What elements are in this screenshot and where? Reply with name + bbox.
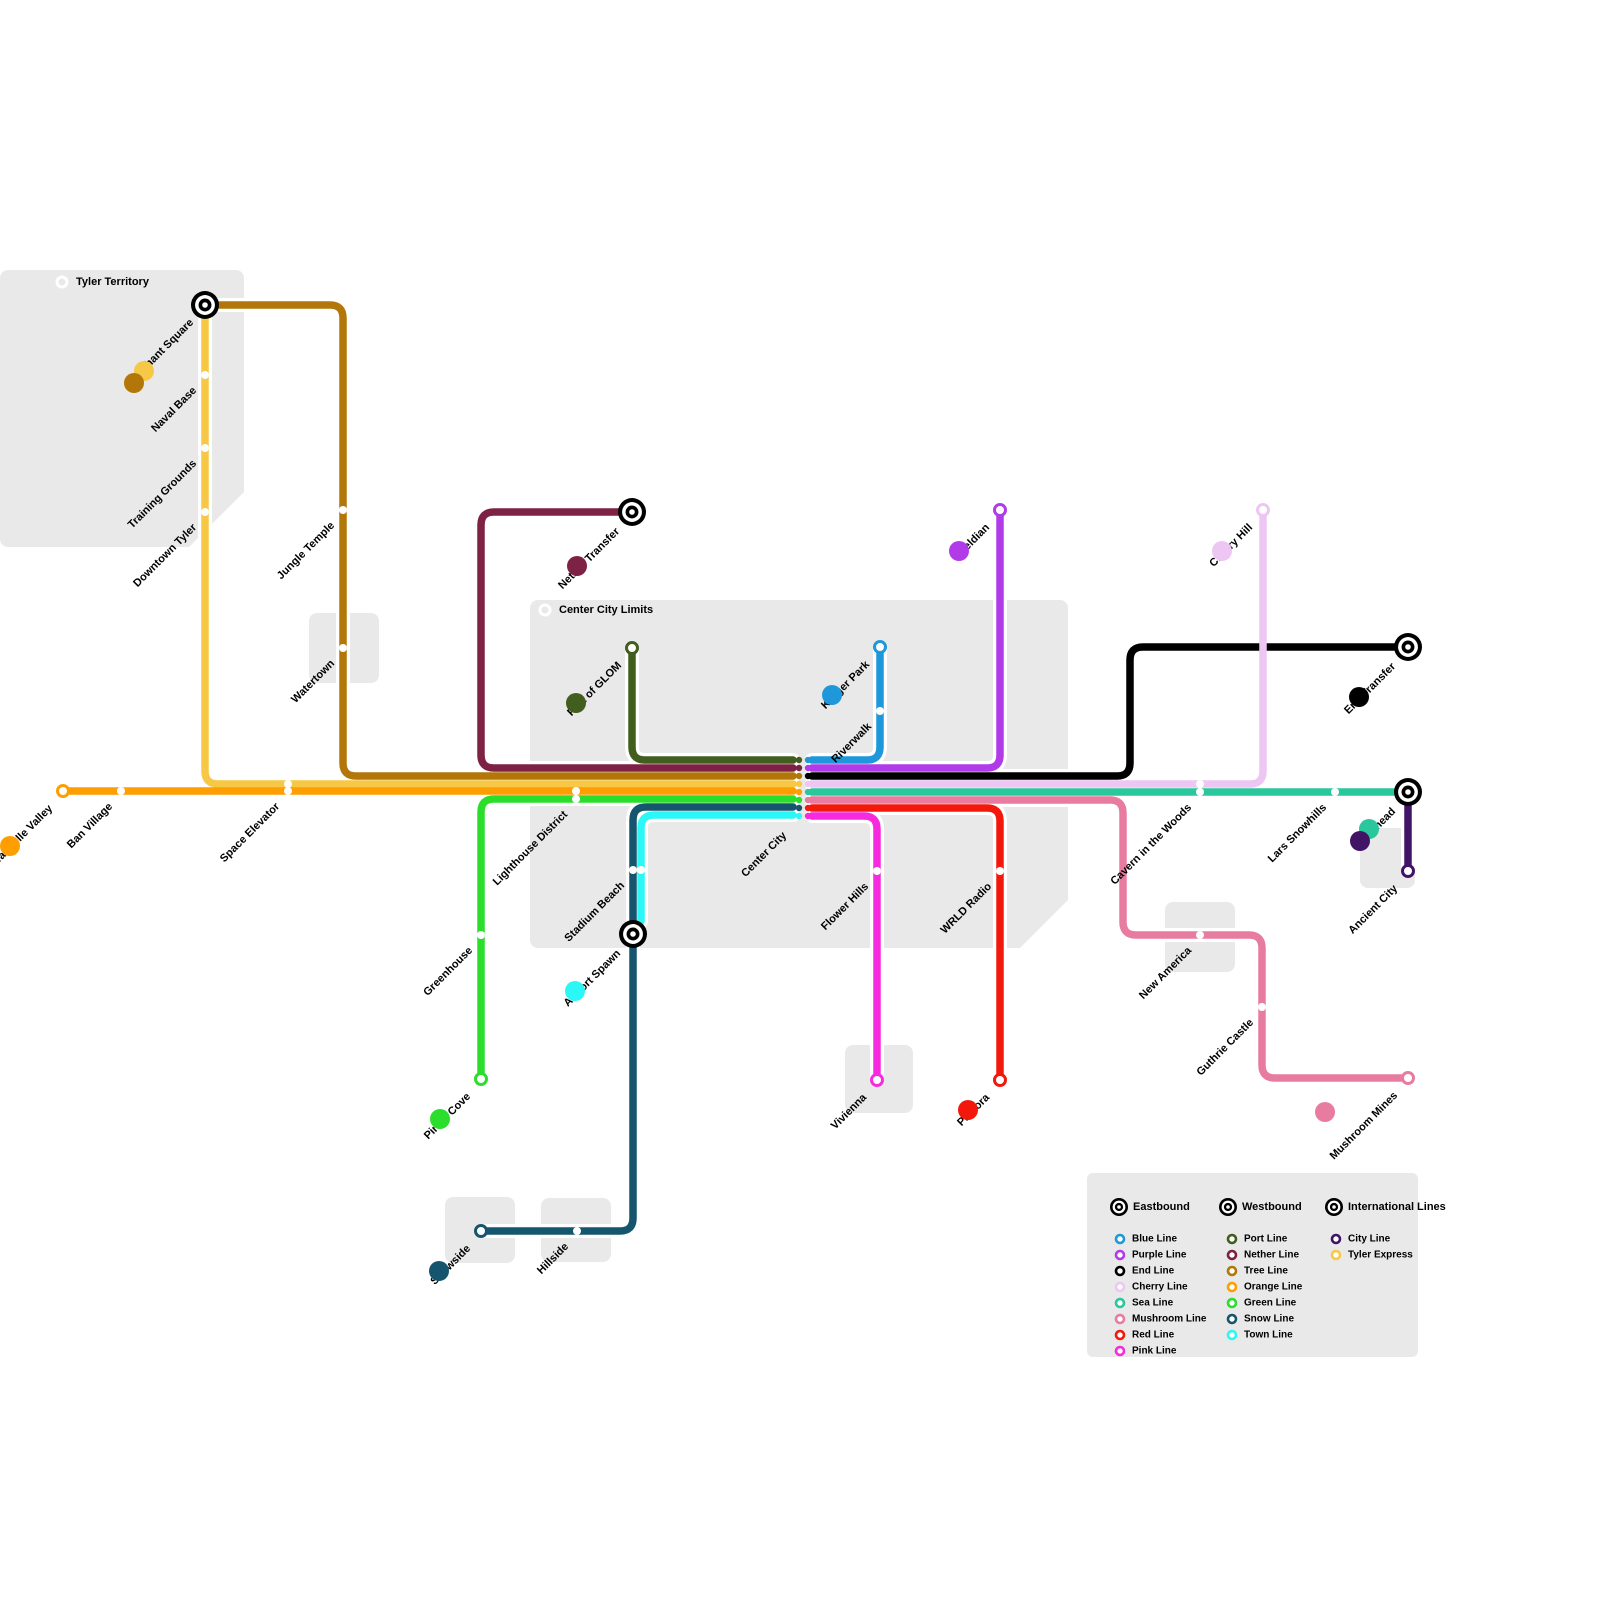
hub-marker-oceghead xyxy=(1394,778,1422,806)
terminus-ring-pirate-cove xyxy=(476,1074,487,1085)
legend-bullet-orange-line xyxy=(1228,1283,1236,1291)
center-city-line-dot xyxy=(805,781,811,787)
legend-item-tree-line: Tree Line xyxy=(1244,1266,1288,1277)
center-city-line-dot xyxy=(805,813,811,819)
legend-item-cherry-line: Cherry Line xyxy=(1132,1282,1188,1293)
station-dot-guthrie-castle xyxy=(1258,1003,1266,1011)
terminus-ring-mushroom-mines xyxy=(1403,1073,1414,1084)
station-label-nether-transfer: Nether Transfer xyxy=(556,525,622,591)
station-dot-downtown-tyler xyxy=(201,508,209,516)
legend-bullet-city-line xyxy=(1332,1235,1340,1243)
station-dot-lars-snowhills xyxy=(1331,788,1339,796)
bullseye-center xyxy=(630,931,636,937)
terminus-ring-kroger-park xyxy=(875,642,886,653)
station-dot-stadium-beach xyxy=(637,866,645,874)
legend-bullet-nether-line xyxy=(1228,1251,1236,1259)
station-dot-space-elevator xyxy=(284,780,292,788)
legend-header-eastbound: Eastbound xyxy=(1133,1201,1190,1213)
legend-bullet-end-line xyxy=(1116,1267,1124,1275)
terminus-ring-wandelle-valley xyxy=(58,786,69,797)
legend-bullet-sea-line xyxy=(1116,1299,1124,1307)
center-city-line-dot xyxy=(805,805,811,811)
hub-marker-airport-spawn xyxy=(619,920,647,948)
cherry-line-badge xyxy=(1212,541,1232,561)
legend-header-icon-international-lines xyxy=(1325,1198,1343,1216)
station-label-mushroom-mines: Mushroom Mines xyxy=(1328,1090,1400,1162)
legend-bullet-tyler-express xyxy=(1332,1251,1340,1259)
center-city-line-dot xyxy=(796,813,802,819)
center-city-line-dot xyxy=(796,789,802,795)
terminus-ring-wyeldian xyxy=(995,505,1006,516)
center-city-line-dot xyxy=(805,789,811,795)
legend-header-icon-westbound xyxy=(1219,1198,1237,1216)
station-dot-training-grounds xyxy=(201,444,209,452)
metro-map-page: Center CityNaval BaseTraining GroundsDow… xyxy=(0,0,1600,1600)
legend-item-red-line: Red Line xyxy=(1132,1330,1175,1341)
snow-line-badge xyxy=(429,1261,449,1281)
station-dot-greenhouse xyxy=(477,931,485,939)
bullseye-center xyxy=(1332,1205,1336,1209)
blue-line-badge xyxy=(822,685,842,705)
bullseye-center xyxy=(202,302,208,308)
center-city-line-dot xyxy=(805,773,811,779)
station-dot-cavern-in-the-woods xyxy=(1196,780,1204,788)
station-dot-stadium-beach xyxy=(629,866,637,874)
station-dot-ban-village xyxy=(117,787,125,795)
hub-marker-nether-transfer xyxy=(618,498,646,526)
legend-bullet-snow-line xyxy=(1228,1315,1236,1323)
legend-item-sea-line: Sea Line xyxy=(1132,1298,1174,1309)
legend-bullet-purple-line xyxy=(1116,1251,1124,1259)
metro-map: Center CityNaval BaseTraining GroundsDow… xyxy=(0,0,1600,1600)
terminus-ring-pastora xyxy=(995,1075,1006,1086)
center-city-line-dot xyxy=(796,797,802,803)
station-dot-riverwalk xyxy=(876,707,884,715)
bullseye-center xyxy=(1405,789,1411,795)
legend-bullet-town-line xyxy=(1228,1331,1236,1339)
bullseye-center xyxy=(1405,644,1411,650)
tree-line-badge xyxy=(124,373,144,393)
legend-bullet-cherry-line xyxy=(1116,1283,1124,1291)
station-dot-watertown xyxy=(339,644,347,652)
legend-item-city-line: City Line xyxy=(1348,1234,1391,1245)
station-dot-jungle-temple xyxy=(339,506,347,514)
station-label-jungle-temple: Jungle Temple xyxy=(275,520,337,582)
orange-line-badge xyxy=(0,836,20,856)
center-city-line-dot xyxy=(796,781,802,787)
legend-item-port-line: Port Line xyxy=(1244,1234,1288,1245)
legend-item-mushroom-line: Mushroom Line xyxy=(1132,1314,1207,1325)
end-line-badge xyxy=(1349,687,1369,707)
station-label-guthrie-castle: Guthrie Castle xyxy=(1194,1017,1256,1079)
town-line-badge xyxy=(565,981,585,1001)
legend-item-purple-line: Purple Line xyxy=(1132,1250,1187,1261)
station-dot-lighthouse-district xyxy=(572,795,580,803)
station-dot-naval-base xyxy=(201,371,209,379)
green-line-badge xyxy=(430,1109,450,1129)
legend-header-westbound: Westbound xyxy=(1242,1201,1302,1213)
legend-bullet-mushroom-line xyxy=(1116,1315,1124,1323)
nether-line-badge xyxy=(567,556,587,576)
legend-bullet-pink-line xyxy=(1116,1347,1124,1355)
port-line-badge xyxy=(566,693,586,713)
station-label-lars-snowhills: Lars Snowhills xyxy=(1266,802,1329,865)
legend-bullet-tree-line xyxy=(1228,1267,1236,1275)
center-city-line-dot xyxy=(796,773,802,779)
station-label-ban-village: Ban Village xyxy=(65,801,115,851)
station-dot-flower-hills xyxy=(873,867,881,875)
bullseye-center xyxy=(1117,1205,1121,1209)
legend-bullet-blue-line xyxy=(1116,1235,1124,1243)
bullseye-center xyxy=(1226,1205,1230,1209)
station-dot-lighthouse-district xyxy=(572,787,580,795)
legend-header-icon-eastbound xyxy=(1110,1198,1128,1216)
city-line-badge xyxy=(1350,831,1370,851)
terminus-ring-ancient-city xyxy=(1403,866,1414,877)
station-dot-new-america xyxy=(1196,931,1204,939)
station-label-end-transfer: End Transfer xyxy=(1342,660,1399,717)
legend-header-international-lines: International Lines xyxy=(1348,1201,1446,1213)
station-label-greenhouse: Greenhouse xyxy=(421,945,475,999)
legend-bullet-port-line xyxy=(1228,1235,1236,1243)
purple-line-badge xyxy=(949,541,969,561)
legend-item-snow-line: Snow Line xyxy=(1244,1314,1294,1325)
region-label-tyler-territory: Tyler Territory xyxy=(76,276,150,288)
terminus-ring-vivienna xyxy=(872,1075,883,1086)
mushroom-line-badge xyxy=(1315,1102,1335,1122)
center-city-line-dot xyxy=(796,765,802,771)
station-dot-space-elevator xyxy=(284,787,292,795)
legend-bullet-red-line xyxy=(1116,1331,1124,1339)
station-dot-hillside xyxy=(573,1227,581,1235)
station-label-ancient-city: Ancient City xyxy=(1346,882,1400,936)
legend-item-town-line: Town Line xyxy=(1244,1330,1293,1341)
legend-item-orange-line: Orange Line xyxy=(1244,1282,1303,1293)
red-line-badge xyxy=(958,1100,978,1120)
legend-item-blue-line: Blue Line xyxy=(1132,1234,1177,1245)
terminus-ring-snowside xyxy=(476,1226,487,1237)
legend-item-pink-line: Pink Line xyxy=(1132,1346,1177,1357)
hub-marker-end-transfer xyxy=(1394,633,1422,661)
legend-bullet-green-line xyxy=(1228,1299,1236,1307)
center-city-line-dot xyxy=(805,765,811,771)
hub-marker-merchant-square xyxy=(191,291,219,319)
center-city-line-dot xyxy=(796,805,802,811)
region-label-center-city-limits: Center City Limits xyxy=(559,604,653,616)
center-city-line-dot xyxy=(805,757,811,763)
terminus-ring-port-of-glom xyxy=(627,643,638,654)
legend-item-tyler-express: Tyler Express xyxy=(1348,1250,1413,1261)
center-city-line-dot xyxy=(805,797,811,803)
terminus-ring-cherry-hill xyxy=(1258,505,1269,516)
legend-item-nether-line: Nether Line xyxy=(1244,1250,1299,1261)
legend-item-end-line: End Line xyxy=(1132,1266,1175,1277)
bullseye-center xyxy=(629,509,635,515)
station-dot-wrld-radio xyxy=(996,867,1004,875)
legend-item-green-line: Green Line xyxy=(1244,1298,1297,1309)
center-city-line-dot xyxy=(796,757,802,763)
station-label-wandelle-valley: Wandelle Valley xyxy=(0,802,56,869)
station-label-space-elevator: Space Elevator xyxy=(218,800,283,865)
station-dot-cavern-in-the-woods xyxy=(1196,788,1204,796)
